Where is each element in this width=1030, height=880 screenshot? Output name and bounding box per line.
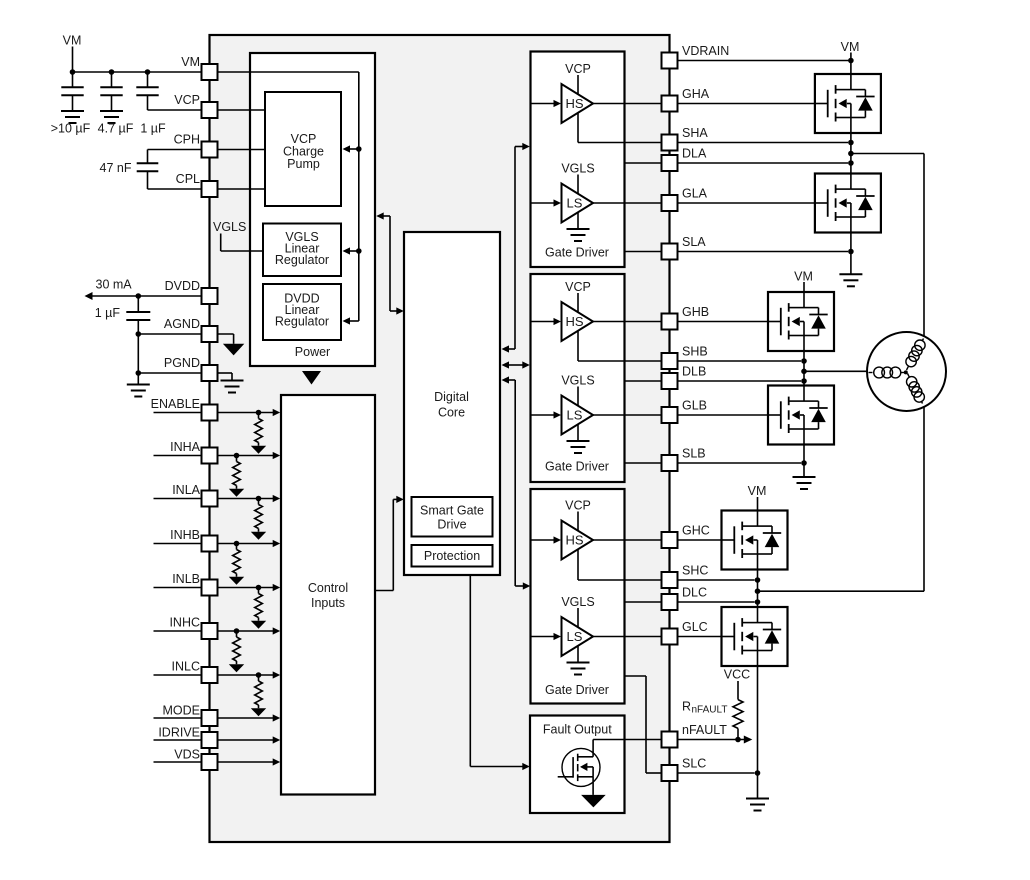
svg-text:Drive: Drive xyxy=(437,518,466,532)
svg-text:CPH: CPH xyxy=(174,133,200,147)
svg-text:PGND: PGND xyxy=(164,356,200,370)
svg-text:GLB: GLB xyxy=(682,399,707,413)
svg-text:DVDD: DVDD xyxy=(165,279,200,293)
svg-text:INLC: INLC xyxy=(172,660,200,674)
svg-text:HS: HS xyxy=(565,533,583,548)
svg-text:VDS: VDS xyxy=(174,748,200,762)
svg-text:VGLS: VGLS xyxy=(561,162,594,176)
svg-text:Gate Driver: Gate Driver xyxy=(545,460,609,474)
svg-text:ENABLE: ENABLE xyxy=(151,397,200,411)
svg-text:SLC: SLC xyxy=(682,757,706,771)
svg-text:SHC: SHC xyxy=(682,564,708,578)
svg-text:GLC: GLC xyxy=(682,620,708,634)
svg-text:Control: Control xyxy=(308,581,348,595)
svg-text:DLB: DLB xyxy=(682,365,706,379)
svg-text:HS: HS xyxy=(565,314,583,329)
svg-text:4.7 µF: 4.7 µF xyxy=(98,122,134,136)
svg-text:R: R xyxy=(682,700,691,714)
svg-text:Regulator: Regulator xyxy=(275,315,329,329)
svg-text:VCP: VCP xyxy=(565,280,591,294)
svg-text:Inputs: Inputs xyxy=(311,596,345,610)
svg-text:INLB: INLB xyxy=(172,572,200,586)
svg-text:VGLS: VGLS xyxy=(213,220,246,234)
svg-text:Digital: Digital xyxy=(434,390,469,404)
svg-text:CPL: CPL xyxy=(176,172,200,186)
svg-text:47 nF: 47 nF xyxy=(100,161,132,175)
svg-text:Regulator: Regulator xyxy=(275,253,329,267)
svg-text:GHC: GHC xyxy=(682,524,710,538)
svg-text:VM: VM xyxy=(63,34,82,48)
svg-text:Pump: Pump xyxy=(287,157,320,171)
svg-text:1 µF: 1 µF xyxy=(140,122,166,136)
svg-text:1 µF: 1 µF xyxy=(95,306,121,320)
svg-text:SHA: SHA xyxy=(682,126,708,140)
svg-text:>10 µF: >10 µF xyxy=(51,122,91,136)
svg-text:SLB: SLB xyxy=(682,447,706,461)
svg-text:GHA: GHA xyxy=(682,87,710,101)
svg-text:VCP: VCP xyxy=(565,499,591,513)
svg-text:Gate Driver: Gate Driver xyxy=(545,683,609,697)
svg-text:DLC: DLC xyxy=(682,586,707,600)
svg-text:VGLS: VGLS xyxy=(561,595,594,609)
svg-text:VM: VM xyxy=(841,40,860,54)
svg-text:VGLS: VGLS xyxy=(561,374,594,388)
svg-text:GHB: GHB xyxy=(682,305,709,319)
svg-text:INLA: INLA xyxy=(172,483,200,497)
svg-text:DLA: DLA xyxy=(682,147,707,161)
svg-text:LS: LS xyxy=(567,629,583,644)
svg-text:INHA: INHA xyxy=(170,440,201,454)
svg-text:LS: LS xyxy=(567,196,583,211)
svg-text:30 mA: 30 mA xyxy=(96,278,133,292)
svg-text:INHC: INHC xyxy=(169,616,200,630)
svg-text:MODE: MODE xyxy=(163,704,201,718)
svg-text:VM: VM xyxy=(181,55,200,69)
svg-text:VM: VM xyxy=(794,270,813,284)
svg-text:VCP: VCP xyxy=(174,93,200,107)
svg-text:LS: LS xyxy=(567,408,583,423)
svg-text:Protection: Protection xyxy=(424,549,480,563)
svg-text:VM: VM xyxy=(748,484,767,498)
svg-text:Power: Power xyxy=(295,345,330,359)
svg-text:VCC: VCC xyxy=(724,668,750,682)
svg-text:Smart Gate: Smart Gate xyxy=(420,504,484,518)
svg-text:nFAULT: nFAULT xyxy=(692,705,728,716)
svg-text:VDRAIN: VDRAIN xyxy=(682,44,729,58)
svg-text:Core: Core xyxy=(438,406,465,420)
svg-text:Fault Output: Fault Output xyxy=(543,723,612,737)
svg-text:Gate Driver: Gate Driver xyxy=(545,246,609,260)
svg-text:SLA: SLA xyxy=(682,235,706,249)
svg-text:VCP: VCP xyxy=(565,62,591,76)
svg-text:IDRIVE: IDRIVE xyxy=(158,726,200,740)
svg-text:GLA: GLA xyxy=(682,187,708,201)
svg-text:AGND: AGND xyxy=(164,317,200,331)
svg-text:SHB: SHB xyxy=(682,345,708,359)
svg-text:INHB: INHB xyxy=(170,528,200,542)
svg-text:nFAULT: nFAULT xyxy=(682,723,727,737)
svg-text:HS: HS xyxy=(565,96,583,111)
